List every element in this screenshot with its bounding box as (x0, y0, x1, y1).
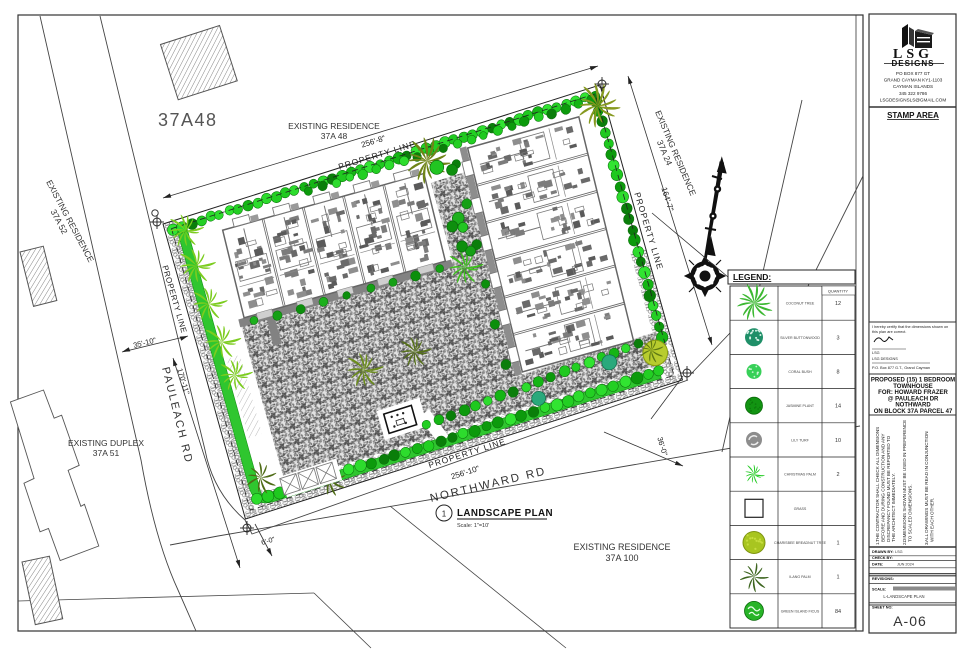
svg-text:10: 10 (835, 438, 841, 444)
svg-text:GRASS: GRASS (794, 507, 807, 511)
svg-text:DATE:: DATE: (872, 563, 883, 567)
svg-text:STAMP AREA: STAMP AREA (887, 111, 939, 120)
svg-text:QUANTITY: QUANTITY (828, 289, 849, 294)
svg-text:LANDSCAPE PLAN: LANDSCAPE PLAN (457, 508, 553, 519)
svg-text:Scale: 1"=10': Scale: 1"=10' (457, 523, 489, 529)
svg-text:DRAWN BY:: DRAWN BY: (872, 550, 894, 554)
svg-text:37A 48: 37A 48 (321, 131, 348, 141)
svg-text:GRAND CAYMAN KY1-1103: GRAND CAYMAN KY1-1103 (884, 78, 943, 83)
svg-text:COCONUT TREE: COCONUT TREE (786, 302, 815, 306)
svg-text:1: 1 (836, 575, 839, 581)
svg-text:L-LANDSCAPE PLAN: L-LANDSCAPE PLAN (883, 594, 924, 599)
svg-text:37A 51: 37A 51 (93, 448, 120, 458)
svg-text:@ PAULEACH DR: @ PAULEACH DR (888, 396, 939, 402)
svg-text:2: 2 (836, 472, 839, 478)
svg-text:EXISTING DUPLEX: EXISTING DUPLEX (68, 438, 144, 448)
svg-text:A-06: A-06 (893, 613, 927, 629)
svg-text:this plan are correct.: this plan are correct. (872, 330, 906, 334)
svg-text:CORAL BUSH: CORAL BUSH (788, 370, 812, 374)
svg-text:1.: 1. (875, 541, 880, 545)
svg-text:37A 100: 37A 100 (605, 553, 638, 563)
svg-text:ILANG PALM: ILANG PALM (789, 575, 810, 579)
svg-text:SHEET NO:: SHEET NO: (872, 606, 893, 610)
svg-text:DIMENSIONS SHOWN MUST BE USED: DIMENSIONS SHOWN MUST BE USED IN PREFERE… (902, 420, 907, 542)
svg-text:LSGDESIGNSLS@GMAIL.COM: LSGDESIGNSLS@GMAIL.COM (880, 97, 947, 102)
svg-text:JUN 2024: JUN 2024 (897, 563, 914, 567)
svg-text:SILVER BUTTONWOOD: SILVER BUTTONWOOD (780, 336, 820, 340)
svg-text:ALL DRAWINGS MUST BE READ IN C: ALL DRAWINGS MUST BE READ IN CONJUNCTION (924, 431, 929, 542)
svg-text:ON BLOCK 37A PARCEL 47: ON BLOCK 37A PARCEL 47 (874, 409, 953, 415)
svg-text:CAYMAN ISLANDS: CAYMAN ISLANDS (893, 84, 933, 89)
svg-text:PO BOX 877 GT: PO BOX 877 GT (896, 71, 930, 76)
svg-text:2.: 2. (902, 541, 907, 545)
svg-text:CHARISBEE BREADNUT TREE: CHARISBEE BREADNUT TREE (774, 541, 827, 545)
svg-text:1: 1 (442, 510, 447, 519)
svg-text:REVISIONS:: REVISIONS: (872, 577, 894, 581)
svg-text:P.O. Box 877 G.T., Grand Cayma: P.O. Box 877 G.T., Grand Cayman (872, 366, 930, 370)
svg-text:WITH EACH OTHER.: WITH EACH OTHER. (929, 498, 934, 542)
svg-text:LSG: LSG (872, 351, 880, 355)
svg-text:CHECK BY:: CHECK BY: (872, 556, 893, 560)
svg-text:3: 3 (836, 335, 839, 341)
svg-text:I hereby certify that the dime: I hereby certify that the dimensions sho… (872, 325, 948, 329)
svg-text:CHRISTMAS PALM: CHRISTMAS PALM (784, 473, 816, 477)
svg-text:THE CONTRACTOR SHALL CHECK ALL: THE CONTRACTOR SHALL CHECK ALL DIMENSION… (875, 427, 880, 542)
svg-text:BEFORE AND DURING CONSTRUCTION: BEFORE AND DURING CONSTRUCTION AND ANY (880, 434, 885, 542)
svg-text:NOTHWARD: NOTHWARD (895, 403, 931, 409)
svg-text:SCALE:: SCALE: (872, 588, 886, 592)
svg-text:PROPOSED (15) 1 BEDROOM: PROPOSED (15) 1 BEDROOM (871, 378, 955, 384)
svg-text:LILY TURF: LILY TURF (791, 438, 809, 442)
svg-text:TOWNHOUSE: TOWNHOUSE (893, 384, 933, 390)
svg-text:3.: 3. (924, 541, 929, 545)
svg-text:LSG DESIGNS: LSG DESIGNS (872, 357, 898, 361)
svg-text:8: 8 (836, 370, 839, 376)
svg-text:TO SCALED DIMENSIONS.: TO SCALED DIMENSIONS. (907, 484, 912, 542)
svg-text:12: 12 (835, 301, 841, 307)
svg-text:LEGEND:: LEGEND: (733, 272, 771, 282)
svg-text:DISCREPANCY FOUND MUST BE REPO: DISCREPANCY FOUND MUST BE REPORTED TO (886, 435, 891, 542)
svg-text:EXISTING RESIDENCE: EXISTING RESIDENCE (288, 121, 380, 131)
svg-text:LSG: LSG (895, 550, 903, 554)
svg-text:14: 14 (835, 404, 841, 410)
svg-text:37A48: 37A48 (158, 110, 218, 130)
svg-text:JASMINE PLANT: JASMINE PLANT (786, 404, 815, 408)
svg-text:FOR: HOWARD FRAZER: FOR: HOWARD FRAZER (878, 390, 948, 396)
svg-text:GREEN ISLAND FICUS: GREEN ISLAND FICUS (781, 609, 820, 613)
svg-text:345 322 9786: 345 322 9786 (899, 91, 928, 96)
svg-text:THE ARCHITECT IMMEDIATELY.: THE ARCHITECT IMMEDIATELY. (891, 473, 896, 542)
svg-text:84: 84 (835, 609, 841, 615)
svg-text:1: 1 (836, 541, 839, 547)
svg-text:EXISTING RESIDENCE: EXISTING RESIDENCE (573, 542, 670, 552)
